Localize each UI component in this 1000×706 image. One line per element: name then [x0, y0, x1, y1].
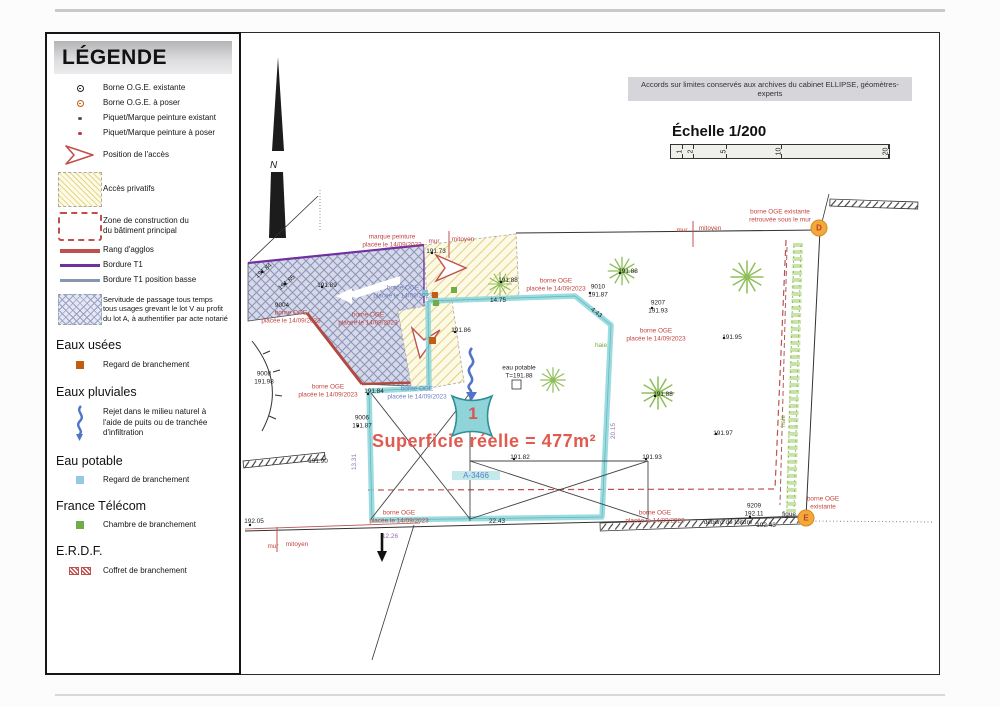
area-label: Superficie réelle = 477m²: [372, 431, 662, 452]
plan-point-label: 9207 191.93: [648, 299, 668, 314]
scale-tick: [693, 154, 694, 158]
plan-label: borne OGE existante retrouvée sous le mu…: [749, 208, 811, 223]
legend-item-label: Regard de branchement: [103, 360, 189, 370]
legend-section-france-telecom: France Télécom: [56, 499, 239, 513]
chambre-ft-marker: [451, 287, 457, 293]
legend-item-borne-existante: Borne O.G.E. existante: [57, 82, 231, 95]
legend-item-position-acces: Position de l'accès: [57, 142, 231, 168]
position-acces-icon: [57, 143, 103, 167]
plan-label-haie: haie: [780, 415, 788, 427]
plan-point-label: 9006 191.87: [352, 414, 372, 429]
zone-construction-icon: [57, 212, 103, 241]
rang-agglos-icon: [57, 249, 103, 253]
regard-eu-icon: [57, 361, 103, 369]
plan-label: borne OGE placée le 14/09/2023: [387, 385, 446, 400]
wall-hatch-top-right: [830, 199, 918, 209]
plan-point-label: 191.89: [317, 282, 337, 290]
plan-point-label: 191.90: [308, 458, 328, 466]
piquet-a-poser-icon: [57, 132, 103, 136]
rejet-icon: [57, 404, 103, 442]
borne-oge-a-poser-icon: [57, 100, 103, 107]
scale-tick: [693, 145, 694, 149]
plan-label: borne OGE placée le 14/09/2023: [626, 327, 685, 342]
regard-eu-marker: [429, 337, 436, 344]
plan-point-label: figue: [782, 511, 796, 519]
eau-potable-marker: [512, 380, 521, 389]
piquet-existant-icon: [57, 117, 103, 121]
legend-item-label: Servitude de passage tous temps tous usa…: [103, 295, 228, 324]
legend-item-regard-eu: Regard de branchement: [57, 354, 231, 376]
north-arrow-icon: N: [269, 57, 320, 238]
plan-point-label: 192.05: [244, 518, 264, 526]
legend-item-coffret: Coffret de branchement: [57, 560, 231, 582]
scale-tick-label: 5: [720, 150, 727, 154]
plan-measure-label: 22.43: [489, 518, 505, 526]
plan-measure-label: 13.31: [351, 454, 359, 470]
servitude-icon: [57, 294, 103, 325]
legend-item-piquet-existant: Piquet/Marque peinture existant: [57, 112, 231, 125]
plan-label-haie: haie: [595, 342, 607, 350]
legend-item-label: Piquet/Marque peinture existant: [103, 113, 216, 123]
chambre-ft-icon: [57, 521, 103, 529]
legend-item-rang-agglos: Rang d'agglos: [57, 244, 231, 257]
scale-tick: [682, 154, 683, 158]
chambre-ft-marker: [433, 300, 439, 306]
legend-section-eaux-pluviales: Eaux pluviales: [56, 385, 239, 399]
legend-item-label: Rang d'agglos: [103, 245, 154, 255]
scale-bar: 1 2 5 10 20: [670, 144, 890, 159]
boundary-marker-e: E: [798, 510, 815, 527]
scale-tick: [682, 145, 683, 149]
plan-measure-label: 14.75: [490, 297, 506, 305]
bordure-t1-basse-icon: [57, 279, 103, 282]
legend-item-borne-a-poser: Borne O.G.E. à poser: [57, 97, 231, 110]
legend-item-bordure-t1: Bordure T1: [57, 259, 231, 272]
legend-item-zone-construction: Zone de construction du du bâtiment prin…: [57, 210, 231, 242]
legend-item-label: Borne O.G.E. à poser: [103, 98, 180, 108]
plan-point-label: 191.93: [642, 454, 662, 462]
legend-section-eau-potable: Eau potable: [56, 454, 239, 468]
plan-label: borne OGE placée le 14/09/2023: [338, 311, 397, 326]
hedge-strip: [780, 243, 801, 512]
legend-item-servitude: Servitude de passage tous temps tous usa…: [57, 289, 231, 329]
plan-point-label: eau potable T=191.88: [502, 364, 535, 379]
regard-ep-icon: [57, 476, 103, 484]
legend-item-label: Coffret de branchement: [103, 566, 187, 576]
parcel-id-label: A-3466: [452, 471, 500, 480]
scale-tick-label: 20: [882, 148, 889, 156]
plan-label: mur: [676, 227, 687, 235]
plan-label: mitoyen: [452, 236, 474, 244]
legend-item-piquet-a-poser: Piquet/Marque peinture à poser: [57, 127, 231, 140]
plan-point-label: 9008 191.98: [254, 370, 274, 385]
scale-tick: [726, 154, 727, 158]
plan-point-label: 9209 192.11: [744, 502, 763, 517]
plan-label: marque peinture placée le 14/09/2023: [362, 233, 421, 248]
plan-label: borne OGE existante: [807, 495, 839, 510]
plan-measure-label: 12.26: [382, 533, 398, 541]
legend-item-label: Bordure T1 position basse: [103, 275, 196, 285]
legend-item-rejet: Rejet dans le milieu naturel à l'aide de…: [57, 401, 231, 445]
legend-item-label: Bordure T1: [103, 260, 143, 270]
plan-point-label: 191.95: [722, 334, 742, 342]
plan-label: mitoyen: [699, 225, 721, 233]
plan-label: borne OGE placée le 14/09/2023: [625, 509, 684, 524]
plan-point-label: 9004: [275, 302, 289, 310]
legend-item-label: Position de l'accès: [103, 150, 169, 160]
bordure-t1-icon: [57, 264, 103, 267]
scale-tick-label: 2: [687, 150, 694, 154]
legend-item-label: Regard de branchement: [103, 475, 189, 485]
boundary-marker-d: D: [811, 220, 828, 237]
plan-point-label: 191.82: [510, 454, 530, 462]
plan-label: borne OGE placée le 14/09/2023: [369, 509, 428, 524]
survey-plan-sheet: LÉGENDE Borne O.G.E. existante Borne O.G…: [0, 0, 1000, 706]
legend-panel: LÉGENDE Borne O.G.E. existante Borne O.G…: [45, 32, 241, 675]
svg-text:N: N: [270, 160, 278, 171]
legend-item-acces-privatifs: Accès privatifs: [57, 170, 231, 208]
plan-label: borne OGE placée le 14/09/2023: [298, 383, 357, 398]
plan-point-label: 191.97: [713, 430, 733, 438]
acces-privatifs-icon: [57, 172, 103, 207]
legend-item-label: Borne O.G.E. existante: [103, 83, 185, 93]
plan-point-label: 191.86: [451, 327, 471, 335]
plan-point-label: 9010 191.87: [588, 283, 608, 298]
legend-section-eaux-usees: Eaux usées: [56, 338, 239, 352]
legend-section-erdf: E.R.D.F.: [56, 544, 239, 558]
archive-note: Accords sur limites conservés aux archiv…: [628, 77, 912, 101]
plan-label: borne OGE placée le 14/09/2023: [373, 284, 432, 299]
scale-title: Échelle 1/200: [672, 123, 766, 140]
legend-item-bordure-t1-basse: Bordure T1 position basse: [57, 274, 231, 287]
plan-point-label: 191.73: [426, 248, 446, 256]
legend-title: LÉGENDE: [54, 41, 232, 74]
legend-item-chambre-ft: Chambre de branchement: [57, 515, 231, 535]
scale-tick: [726, 145, 727, 149]
borne-oge-existante-icon: [57, 85, 103, 92]
scale-tick-label: 10: [775, 148, 782, 156]
plan-label: borne OGE placée le 14/09/2023: [526, 277, 585, 292]
legend-item-label: Piquet/Marque peinture à poser: [103, 128, 215, 138]
plan-point-label: 191.88: [498, 277, 518, 285]
rejet-eaux-pluviales-icon: [466, 348, 477, 401]
plan-label: mur: [428, 238, 439, 246]
legend-item-label: Rejet dans le milieu naturel à l'aide de…: [103, 407, 207, 438]
plan-label: mitoyen: [286, 541, 308, 549]
plan-label: mur: [267, 543, 278, 551]
legend-item-label: Chambre de branchement: [103, 520, 196, 530]
regard-eu-marker: [432, 292, 438, 298]
legend-item-label: Accès privatifs: [103, 184, 155, 194]
legend-item-label: Zone de construction du du bâtiment prin…: [103, 216, 189, 237]
plan-point-label: débord de toiture: [704, 519, 752, 527]
coffret-icon: [57, 567, 103, 575]
plan-point-label: 191.88: [653, 391, 673, 399]
lot-number-label: 1: [463, 404, 483, 424]
plan-point-label: 192.43: [756, 522, 776, 530]
plan-point-label: 191.88: [618, 268, 638, 276]
scale-tick-label: 1: [676, 150, 683, 154]
plan-label: borne OGE placée le 14/09/2023: [261, 309, 320, 324]
plan-point-label: 191.84: [364, 388, 384, 396]
legend-item-regard-ep: Regard de branchement: [57, 470, 231, 490]
